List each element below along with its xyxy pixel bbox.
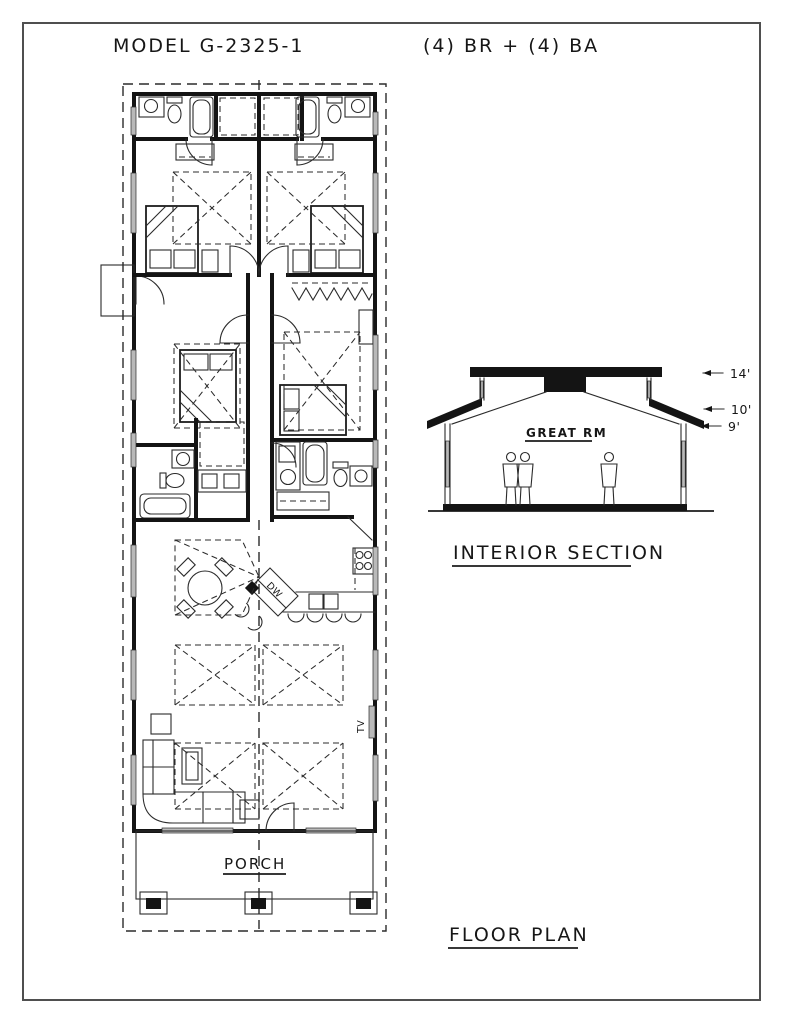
side-door-arc	[136, 276, 164, 304]
dw-label: DW	[264, 580, 284, 600]
entry-door-arc	[266, 803, 294, 831]
bed-mid-left	[180, 350, 236, 422]
nightstand-right	[293, 250, 309, 272]
bed-top-right	[311, 206, 363, 273]
interior-section-caption: INTERIOR SECTION	[453, 542, 665, 564]
closet-top-left	[220, 98, 255, 135]
dresser-left	[176, 144, 214, 160]
dimension-arrows: 14' 10' 9'	[701, 366, 752, 434]
dining-area	[177, 558, 233, 618]
closet-top-right	[264, 98, 298, 135]
range	[353, 548, 374, 574]
sectional-sofa	[143, 740, 245, 823]
walkin-closet	[200, 422, 244, 466]
bathroom-top-left	[139, 97, 213, 137]
blueprint-canvas: MODEL G-2325-1 (4) BR + (4) BA	[0, 0, 791, 1024]
height-marker-10: 10'	[731, 402, 752, 417]
height-marker-14: 14'	[730, 366, 751, 381]
interior-section: GREAT RM 14'	[427, 366, 752, 566]
living-area	[143, 714, 259, 823]
ridge-beam	[544, 377, 586, 392]
bathroom-mid-right	[272, 440, 375, 510]
kitchen-island: DW	[245, 568, 298, 616]
kitchen: DW	[235, 548, 375, 633]
floor-plan: DW	[101, 80, 589, 948]
blueprint-sheet: MODEL G-2325-1 (4) BR + (4) BA	[0, 0, 791, 1024]
end-table	[151, 714, 171, 734]
bedrooms-top	[134, 94, 375, 275]
ceiling-marks-mid-right	[284, 332, 360, 430]
nightstand-left	[202, 250, 218, 272]
spec-label: (4) BR + (4) BA	[423, 35, 599, 57]
dining-table	[188, 571, 222, 605]
side-stoop	[101, 265, 134, 316]
section-roof	[427, 367, 704, 429]
bathroom-mid-left	[134, 420, 246, 520]
bed-top-left	[146, 206, 198, 273]
cabinet-mid-right	[359, 310, 373, 344]
tv: TV	[356, 706, 375, 738]
bar-stools	[235, 603, 361, 633]
floor-plan-caption: FLOOR PLAN	[449, 924, 589, 946]
clerestory-roof	[470, 367, 662, 377]
floor-slab	[443, 504, 687, 511]
section-people	[503, 453, 617, 506]
bedrooms-middle	[134, 275, 375, 540]
bathroom-top-right	[296, 97, 370, 137]
tv-unit	[369, 706, 375, 738]
porch-label: PORCH	[224, 855, 286, 873]
great-rm-label: GREAT RM	[526, 426, 607, 440]
closet-rod-right	[292, 283, 372, 300]
dresser-right	[295, 144, 333, 160]
tv-label: TV	[356, 720, 367, 734]
bed-mid-right	[280, 385, 346, 435]
height-marker-9: 9'	[728, 419, 740, 434]
model-title: MODEL G-2325-1	[113, 35, 305, 57]
porch: PORCH	[136, 831, 377, 914]
